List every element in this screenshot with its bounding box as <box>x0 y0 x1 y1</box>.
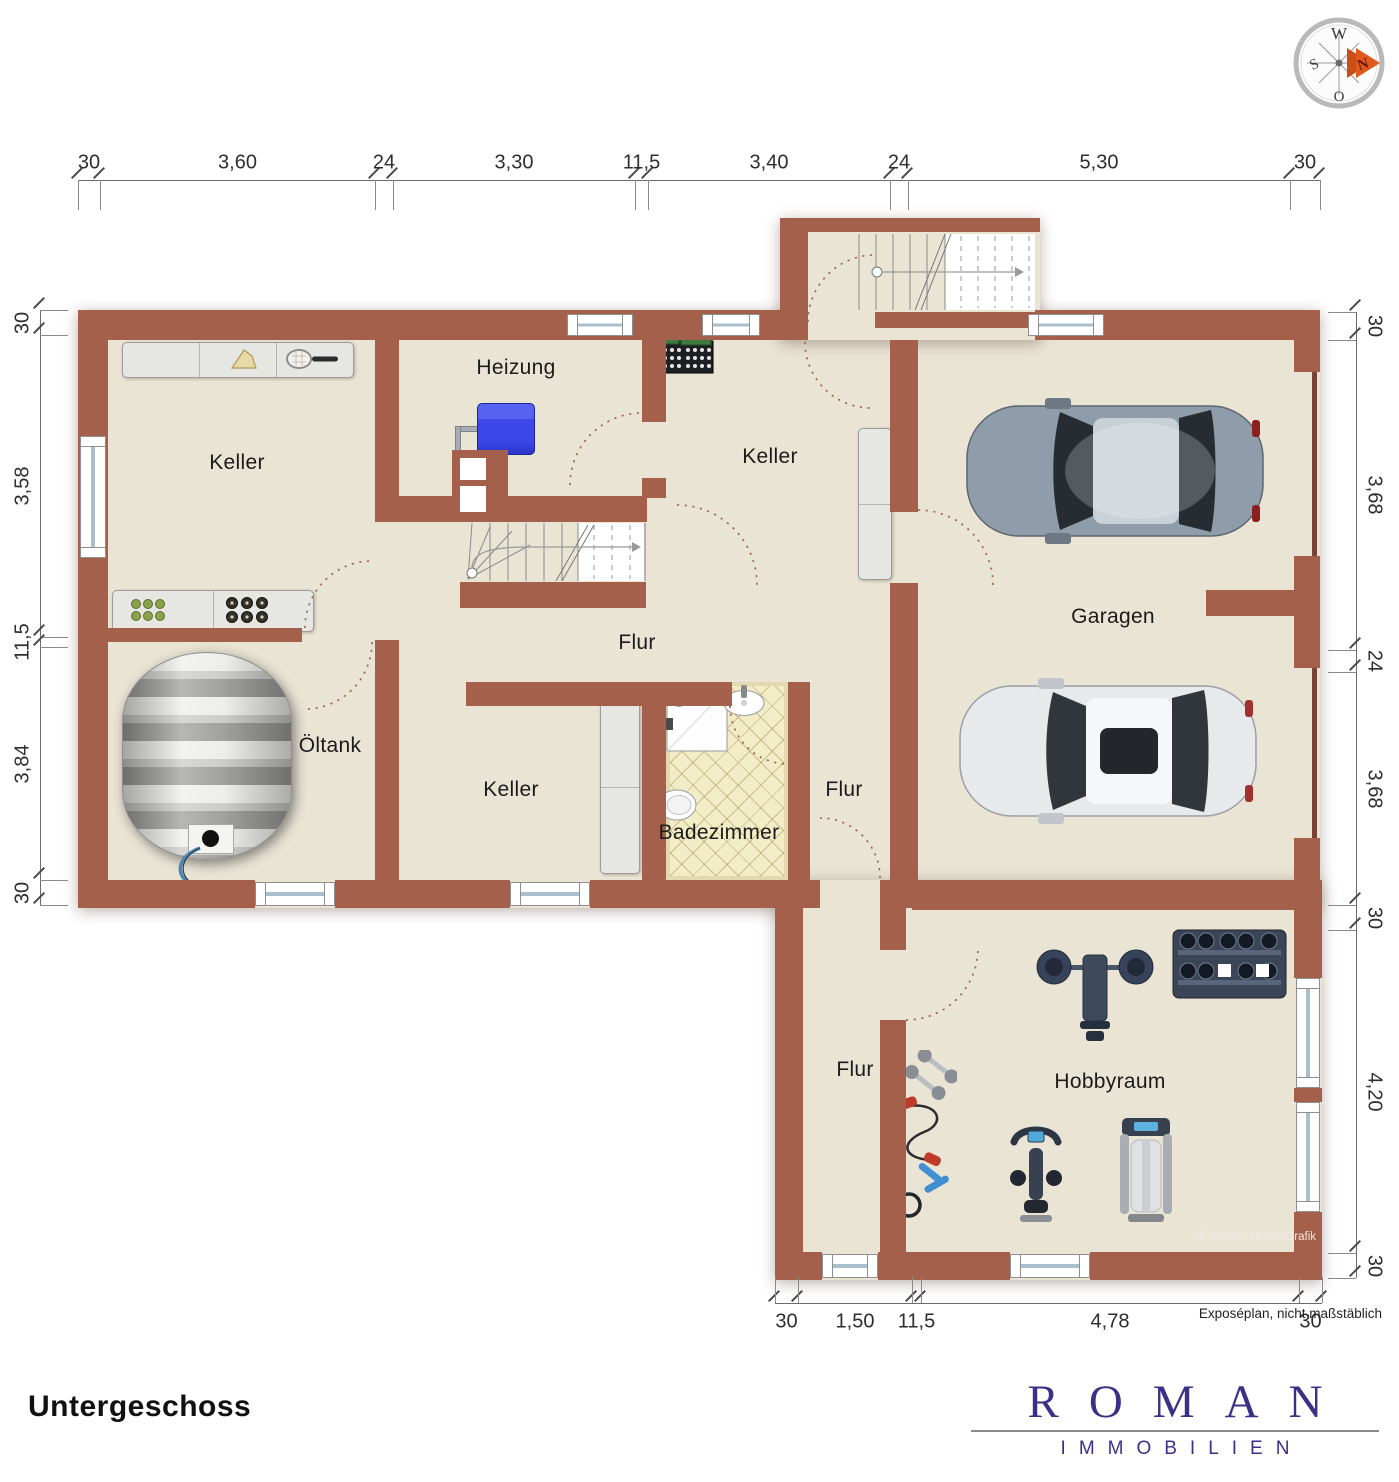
dim-extension-line <box>40 880 68 881</box>
dim-label: 11,5 <box>12 623 35 660</box>
dim-extension-line <box>1328 905 1356 906</box>
dim-extension-line <box>1328 650 1356 651</box>
room-label-oeltank: Öltank <box>299 734 362 758</box>
dim-label: 4,20 <box>1363 1072 1386 1111</box>
dim-label: 1,50 <box>836 1311 875 1334</box>
compass-rose: W S O N <box>1293 17 1385 109</box>
dim-extension-line <box>1328 1253 1356 1254</box>
dimension-chain-line <box>1356 312 1357 1278</box>
dim-label: 30 <box>1294 152 1316 175</box>
dim-label: 30 <box>1363 1254 1386 1276</box>
dim-label: 3,68 <box>1363 769 1386 808</box>
room-label-hobbyraum: Hobbyraum <box>1054 1070 1165 1094</box>
dim-extension-line <box>912 1277 913 1303</box>
brand-subtitle: IMMOBILIEN <box>965 1438 1385 1460</box>
door-swing-arcs <box>0 0 1399 1482</box>
dim-extension-line <box>40 905 68 906</box>
dim-extension-line <box>798 1277 799 1303</box>
room-label-flur-middle: Flur <box>618 631 655 655</box>
dim-label: 30 <box>1363 906 1386 928</box>
room-label-flur-lower: Flur <box>836 1058 873 1082</box>
dim-label: 3,60 <box>218 152 257 175</box>
dim-extension-line <box>40 310 68 311</box>
dim-label: 24 <box>1363 650 1386 672</box>
room-label-keller-top-left: Keller <box>209 451 265 475</box>
dim-extension-line <box>40 647 68 648</box>
dim-label: 11,5 <box>898 1311 935 1334</box>
dim-extension-line <box>648 180 649 210</box>
dim-extension-line <box>78 180 79 210</box>
dim-label: 5,30 <box>1080 152 1119 175</box>
dim-label: 3,30 <box>495 152 534 175</box>
scale-disclaimer: Exposéplan, nicht maßstäblich <box>1040 1306 1382 1321</box>
dim-label: 30 <box>12 311 35 333</box>
brand-name: ROMAN <box>965 1378 1385 1427</box>
dim-extension-line <box>635 180 636 210</box>
dim-extension-line <box>890 180 891 210</box>
room-label-heizung: Heizung <box>476 356 555 380</box>
dim-label: 11,5 <box>623 152 660 175</box>
room-label-keller-bottom: Keller <box>483 778 539 802</box>
brand-divider <box>971 1430 1379 1432</box>
dim-extension-line <box>1299 1277 1300 1303</box>
dim-label: 30 <box>78 152 100 175</box>
dim-extension-line <box>1322 1277 1323 1303</box>
dim-extension-line <box>1328 1278 1356 1279</box>
room-label-garage: Garagen <box>1071 605 1155 629</box>
dim-label: 3,68 <box>1363 476 1386 515</box>
dim-extension-line <box>1328 930 1356 931</box>
compass-letter-w: W <box>1331 24 1348 43</box>
dim-label: 3,58 <box>12 467 35 506</box>
dim-label: 30 <box>775 1311 797 1334</box>
dim-label: 3,40 <box>750 152 789 175</box>
dim-extension-line <box>375 180 376 210</box>
dim-extension-line <box>40 335 68 336</box>
dim-extension-line <box>908 180 909 210</box>
brand-logo: ROMAN IMMOBILIEN <box>965 1378 1385 1460</box>
dim-extension-line <box>100 180 101 210</box>
dim-extension-line <box>1320 180 1321 210</box>
room-label-flur-small: Flur <box>825 778 862 802</box>
dimension-chain-line <box>775 1303 1322 1304</box>
dim-label: 24 <box>373 152 395 175</box>
dim-extension-line <box>1328 312 1356 313</box>
dim-label: 30 <box>1363 315 1386 337</box>
compass-letter-o: O <box>1334 89 1345 105</box>
dim-extension-line <box>1328 340 1356 341</box>
illustration-credit: illustration©immoGrafik <box>1060 1231 1316 1243</box>
dim-label: 3,84 <box>12 744 35 783</box>
dim-extension-line <box>775 1277 776 1303</box>
room-label-badezimmer: Badezimmer <box>659 821 780 845</box>
dimension-chain-line <box>40 310 41 905</box>
dimension-chain-line <box>78 180 1320 181</box>
dim-extension-line <box>40 637 68 638</box>
dim-label: 30 <box>12 881 35 903</box>
dim-extension-line <box>921 1277 922 1303</box>
dim-label: 24 <box>888 152 910 175</box>
dim-extension-line <box>1290 180 1291 210</box>
room-label-keller-top-middle: Keller <box>742 445 798 469</box>
floorplan-page: Keller Heizung Keller Garagen Öltank Flu… <box>0 0 1399 1482</box>
dim-extension-line <box>393 180 394 210</box>
dim-extension-line <box>1328 672 1356 673</box>
floor-title: Untergeschoss <box>28 1390 251 1424</box>
